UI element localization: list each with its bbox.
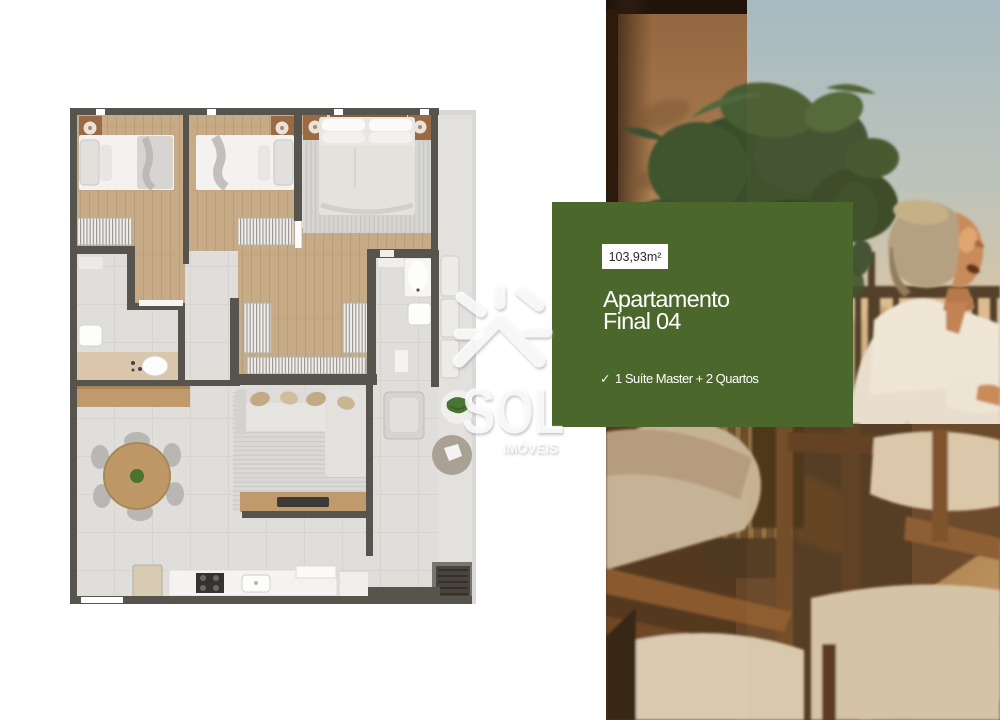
svg-text:SOL: SOL: [462, 375, 564, 447]
svg-text:IMÓVEIS: IMÓVEIS: [503, 439, 558, 456]
